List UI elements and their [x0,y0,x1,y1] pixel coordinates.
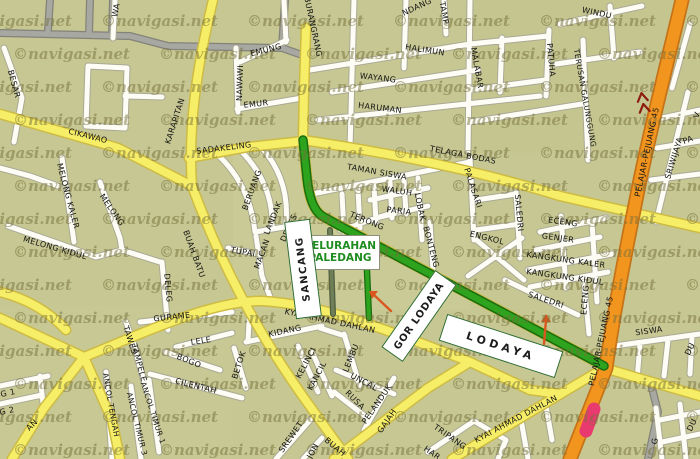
sancang-street-highlight [330,230,333,314]
gor-lodaya-street-highlight [366,248,369,318]
route-marker-pink [586,409,594,431]
map-viewport[interactable]: ©navigasi.net©navigasi.net©navigasi.net©… [0,0,700,459]
lodaya-arrowhead-icon [541,314,551,322]
roads-svg [0,0,700,459]
